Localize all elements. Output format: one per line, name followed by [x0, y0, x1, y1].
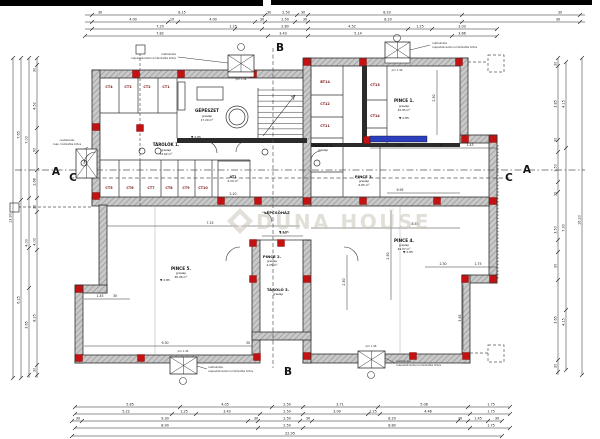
- dimension-text: 30: [556, 18, 560, 22]
- plan-label: 1.45: [96, 294, 103, 298]
- dimension-text: 4.46: [424, 410, 432, 414]
- plan-label: csatlakozás: [60, 138, 76, 142]
- plan-label: 4.90: [396, 143, 403, 147]
- plan-label: csap. hálózatba kötve: [53, 142, 82, 146]
- plan-label: 2.30: [439, 262, 446, 266]
- dimension-text: 30: [303, 18, 307, 22]
- plan-label: CT2: [143, 85, 151, 89]
- plan-label: 7.15: [206, 221, 213, 225]
- column-marker: [254, 354, 261, 361]
- column-marker: [250, 276, 257, 283]
- dimension-text: 2.80: [281, 25, 289, 29]
- top-bar: [0, 0, 263, 6]
- plan-label: C: [69, 172, 77, 184]
- fixture-circle: [314, 160, 320, 166]
- dimension-text: 3.71: [336, 403, 344, 407]
- dimension-text: 2.50: [282, 11, 290, 15]
- dimension-text: 1.25: [229, 25, 237, 29]
- plan-label: CT4: [105, 85, 113, 89]
- plan-label: ▼ 2.85: [403, 250, 413, 254]
- interior-wall: [362, 66, 367, 143]
- plan-label: CT1: [162, 85, 170, 89]
- dimension-text: 4.05: [221, 403, 229, 407]
- plan-label: 33.62 m²: [160, 152, 173, 156]
- column-marker: [304, 276, 311, 283]
- plan-label: TÁROLÓK 1.: [153, 142, 180, 147]
- column-marker: [456, 59, 463, 66]
- wall: [92, 70, 100, 205]
- dimension-text: 1.75: [487, 424, 495, 428]
- dimension-text: 30: [558, 11, 562, 15]
- dimension-text: 30: [554, 264, 558, 268]
- dimension-text: 30: [33, 205, 37, 209]
- dimension-text: 3.85: [554, 100, 558, 108]
- column-marker: [133, 71, 140, 78]
- plan-label: CT11: [320, 124, 330, 128]
- column-marker: [304, 353, 311, 360]
- plan-label: CT12: [320, 102, 330, 106]
- wall: [252, 332, 311, 340]
- plan-label: C: [505, 172, 513, 184]
- dimension-text: 7.65: [17, 131, 21, 139]
- plan-label: CT5: [105, 186, 113, 190]
- plan-label: 2.50: [432, 94, 436, 101]
- column-marker: [218, 198, 225, 205]
- dimension-text: 5.22: [122, 410, 130, 414]
- plan-label: csatlakozás: [208, 365, 224, 369]
- dimension-text: 3.65: [25, 321, 29, 329]
- dimension-text: 7.82: [156, 32, 164, 36]
- dashed-lightwell: [488, 55, 504, 72]
- plan-label: 1.43: [466, 143, 473, 147]
- wall: [92, 70, 311, 78]
- floor-plan-page: 308.15302.50308.20304.00104.00302.50308.…: [0, 0, 600, 439]
- plan-label: CT8: [165, 186, 173, 190]
- dimension-text: 1.75: [487, 403, 495, 407]
- plan-label: csapadékcsatorna hálózatba kötve: [131, 56, 177, 60]
- dimension-text: 1.45: [474, 417, 482, 421]
- reference-circle-marker: [368, 372, 375, 379]
- plan-label: 2.10: [229, 192, 236, 196]
- dimension-text: 30: [98, 11, 102, 15]
- dimension-text: 30: [554, 62, 558, 66]
- column-marker: [304, 198, 311, 205]
- dimension-text: 30: [33, 368, 37, 372]
- dimension-text: 30: [301, 11, 305, 15]
- dimension-text: 30: [33, 68, 37, 72]
- reference-circle-marker: [180, 378, 187, 385]
- plan-label: 30: [246, 341, 250, 345]
- dimension-text: 30: [260, 18, 264, 22]
- column-marker: [462, 276, 469, 283]
- wall: [489, 135, 497, 283]
- column-marker: [76, 355, 83, 362]
- plan-label: A: [52, 166, 61, 178]
- dimension-text: 3.03: [458, 25, 466, 29]
- plan-label: GÉPÉSZET: [195, 108, 219, 113]
- equipment-rect: [10, 203, 19, 212]
- dimension-text: 2.50: [281, 18, 289, 22]
- column-marker: [304, 59, 311, 66]
- plan-label: 30: [113, 294, 117, 298]
- plan-label: pm 1.46: [236, 77, 247, 81]
- column-marker: [360, 59, 367, 66]
- dimension-text: 7.00: [25, 136, 29, 144]
- plan-label: PINCE 1.: [394, 98, 414, 103]
- door-swing-arc: [344, 247, 358, 261]
- dashed-lightwell: [488, 345, 504, 362]
- column-marker: [138, 355, 145, 362]
- watermark-text: DUNA HOUSE: [256, 210, 431, 234]
- dimension-text: 30: [554, 192, 558, 196]
- wall: [303, 58, 311, 206]
- column-marker: [490, 136, 497, 143]
- top-bar: [271, 0, 592, 5]
- column-marker: [76, 286, 83, 293]
- plan-label: ▼ 2.85: [191, 135, 201, 139]
- dimension-text: 1.25: [369, 410, 377, 414]
- plan-label: CT14: [370, 114, 380, 118]
- column-marker: [178, 71, 185, 78]
- dimension-text: 4.00: [25, 239, 29, 247]
- dimension-text: 90: [33, 148, 37, 152]
- plan-label: 1.75: [474, 262, 481, 266]
- watermark-registered-icon: ®: [388, 207, 395, 215]
- column-marker: [278, 240, 285, 247]
- plan-label: B: [276, 42, 284, 54]
- dimension-text: 4.52: [33, 102, 37, 110]
- column-marker: [137, 125, 144, 132]
- plan-label: 30: [439, 143, 443, 147]
- plan-label: CT3: [124, 85, 132, 89]
- dimension-text: 3.43: [279, 32, 287, 36]
- column-marker: [410, 353, 417, 360]
- dimension-text: 2.50: [283, 424, 291, 428]
- dimension-text: 6.25: [17, 296, 21, 304]
- door-swing-arc: [311, 151, 321, 161]
- column-marker: [93, 193, 100, 200]
- wall: [75, 285, 83, 363]
- highlighted-beam: [370, 136, 427, 142]
- dimension-text: 3.50: [554, 226, 558, 234]
- dimension-text: 30: [254, 417, 258, 421]
- plan-label: 9.95: [396, 188, 403, 192]
- plan-label: 2.50: [342, 278, 346, 285]
- dimension-text: 5.08: [420, 403, 428, 407]
- dimension-text: 4.15: [562, 318, 566, 326]
- plan-label: 45.05 m²: [398, 108, 411, 112]
- plan-label: CT7: [147, 186, 155, 190]
- plan-label: 2.50: [386, 252, 390, 259]
- watermark: DUNA HOUSE ®: [227, 207, 431, 234]
- wall: [460, 58, 468, 143]
- dimension-text: 8.20: [384, 18, 392, 22]
- dimension-text: 3.66: [458, 32, 466, 36]
- dimension-text: 4.00: [209, 18, 217, 22]
- plan-label: csapadékcsatorna hálózatba kötve: [208, 369, 254, 373]
- dimension-text: 4.52: [348, 25, 356, 29]
- column-marker: [462, 136, 469, 143]
- plan-label: pm 1.46: [178, 349, 189, 353]
- dimension-text: 1.50: [554, 164, 558, 172]
- column-marker: [490, 198, 497, 205]
- dimension-text: 5.14: [354, 32, 362, 36]
- wall: [303, 240, 311, 363]
- dimension-text: 2.50: [283, 417, 291, 421]
- dimension-text: 30: [267, 11, 271, 15]
- plan-label: CT10: [198, 186, 208, 190]
- plan-label: CT13: [370, 83, 380, 87]
- plan-label: 4.20 m²: [228, 179, 239, 183]
- reference-circle-marker: [394, 35, 401, 42]
- plan-label: ▼ 2.85: [160, 278, 170, 282]
- dimension-text: 30: [458, 417, 462, 421]
- column-marker: [434, 198, 441, 205]
- plan-label: greslap: [273, 292, 284, 296]
- dimension-text: 16.20: [578, 215, 582, 225]
- plan-label: 6.85 m²: [359, 183, 370, 187]
- equipment-rect: [136, 45, 145, 54]
- fixture-circle: [262, 149, 268, 155]
- equipment-rect: [178, 82, 185, 110]
- dimension-text: 10: [170, 18, 174, 22]
- dimension-text: 7.20: [156, 25, 164, 29]
- dimension-text: 8.25: [33, 314, 37, 322]
- dimension-text: 3.43: [223, 410, 231, 414]
- dimension-text: 30: [495, 417, 499, 421]
- plan-label: BT14: [320, 80, 330, 84]
- wall: [75, 355, 260, 363]
- door-swing-arc: [226, 247, 240, 261]
- dimension-text: 7.30: [562, 224, 566, 232]
- reference-circle-marker: [238, 44, 245, 51]
- plan-label: pm 1.46: [366, 344, 377, 348]
- dimension-text: 8.15: [178, 11, 186, 15]
- partition-line: [197, 366, 207, 369]
- plan-label: pm 1.46: [392, 68, 403, 72]
- plan-label: csapadékcsatorna hálózatba kötve: [396, 363, 442, 367]
- dimension-text: 1.25: [416, 25, 424, 29]
- column-marker: [360, 198, 367, 205]
- dimension-text: 8.20: [383, 11, 391, 15]
- plan-label: greslap: [318, 148, 329, 152]
- dimension-text: 1.75: [487, 410, 495, 414]
- plan-label: ▼ 2.85: [399, 116, 409, 120]
- column-marker: [255, 198, 262, 205]
- shaft-strip: [228, 72, 254, 77]
- dimension-text: 3.09: [333, 410, 341, 414]
- fixture-circle: [229, 109, 245, 125]
- plan-label: csatlakozás: [161, 52, 177, 56]
- floor-plan-svg: 308.15302.50308.20304.00104.00302.50308.…: [0, 0, 600, 439]
- dimension-text: 4.15: [562, 100, 566, 108]
- dimension-text: 1.25: [180, 410, 188, 414]
- partition-line: [178, 57, 228, 63]
- partition-line: [410, 45, 430, 50]
- dimension-text: 2.50: [283, 403, 291, 407]
- column-marker: [463, 353, 470, 360]
- plan-label: CT6: [126, 186, 134, 190]
- plan-label: csatlakozás: [432, 41, 448, 45]
- dimension-text: 22.95: [285, 432, 295, 436]
- plan-label: B: [284, 366, 292, 378]
- dimension-text: 3.65: [554, 316, 558, 324]
- shaft-strip: [385, 58, 410, 63]
- wall: [99, 205, 107, 293]
- column-marker: [364, 137, 371, 144]
- dimension-text: 9.30: [161, 417, 169, 421]
- column-marker: [490, 276, 497, 283]
- plan-label: csapadékcsatorna hálózatba kötve: [432, 45, 478, 49]
- dimension-text: 4.00: [129, 18, 137, 22]
- dimension-text: 8.80: [388, 424, 396, 428]
- column-marker: [250, 240, 257, 247]
- plan-label: csatlakozás: [396, 359, 412, 363]
- dimension-text: 30: [554, 364, 558, 368]
- plan-label: A: [523, 164, 532, 176]
- dimension-text: 30: [76, 417, 80, 421]
- plan-label: 65.96 m²: [175, 275, 188, 279]
- equipment-rect: [197, 87, 223, 100]
- dimension-text: 13.90: [9, 213, 13, 223]
- dimension-text: 4.00: [33, 238, 37, 246]
- plan-label: 9.30: [161, 341, 168, 345]
- dimension-text: 30: [306, 417, 310, 421]
- plan-label: CT9: [182, 186, 190, 190]
- plan-label: 17.20 m²: [201, 118, 214, 122]
- dimension-text: 8.90: [161, 424, 169, 428]
- dimension-text: 5.85: [126, 403, 134, 407]
- dimension-text: 30: [554, 138, 558, 142]
- plan-label: 3.85: [458, 314, 462, 321]
- plan-label: 4.25 m²: [267, 263, 278, 267]
- dimension-text: 2.68: [33, 178, 37, 186]
- column-marker: [93, 124, 100, 131]
- dimension-text: 2.50: [283, 410, 291, 414]
- dimension-text: 8.20: [388, 417, 396, 421]
